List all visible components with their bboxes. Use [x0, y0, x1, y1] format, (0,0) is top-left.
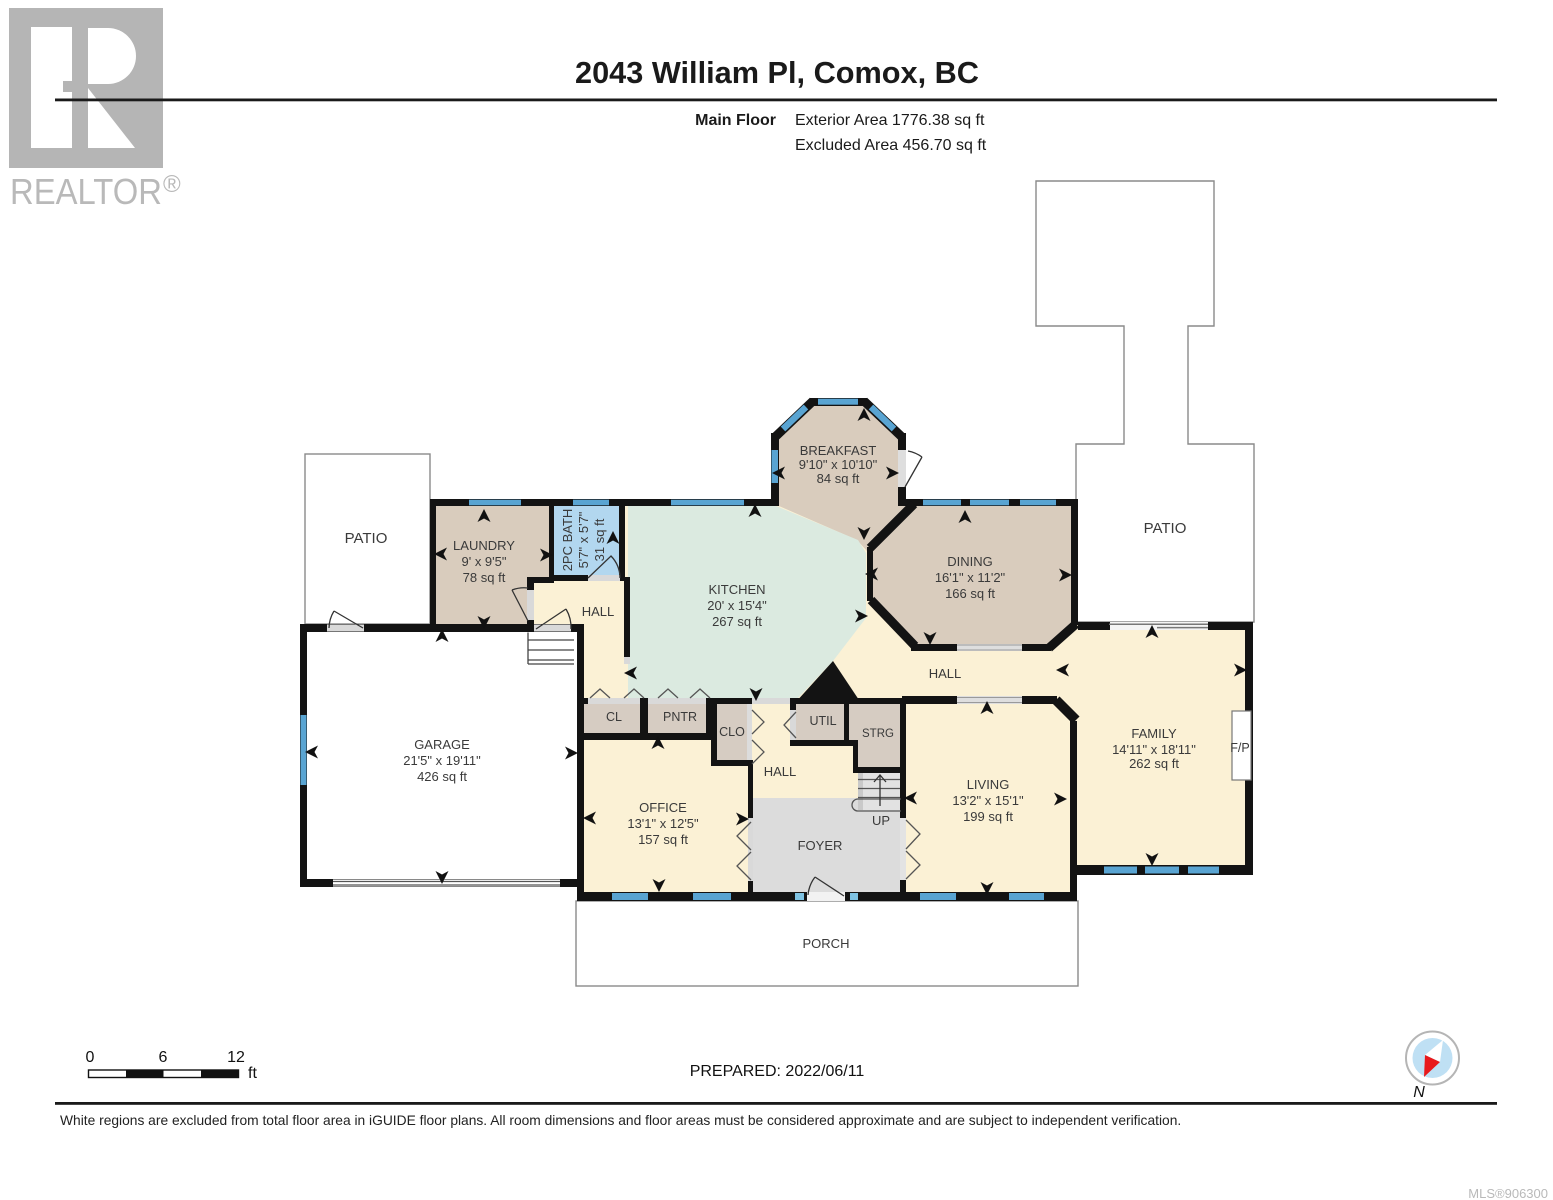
svg-text:PATIO: PATIO: [1144, 520, 1187, 537]
svg-text:262 sq ft: 262 sq ft: [1129, 756, 1179, 771]
svg-text:REALTOR: REALTOR: [10, 171, 162, 212]
svg-text:0: 0: [86, 1049, 95, 1066]
svg-text:HALL: HALL: [929, 666, 962, 681]
svg-text:GARAGE: GARAGE: [414, 737, 470, 752]
svg-text:267 sq ft: 267 sq ft: [712, 614, 762, 629]
svg-text:157 sq ft: 157 sq ft: [638, 832, 688, 847]
svg-text:OFFICE: OFFICE: [639, 800, 687, 815]
svg-text:199 sq ft: 199 sq ft: [963, 809, 1013, 824]
svg-text:PNTR: PNTR: [663, 710, 697, 724]
svg-text:ft: ft: [248, 1065, 257, 1082]
svg-text:Main Floor: Main Floor: [695, 112, 776, 129]
svg-text:PREPARED: 2022/06/11: PREPARED: 2022/06/11: [690, 1063, 865, 1080]
svg-text:13'2" x 15'1": 13'2" x 15'1": [952, 793, 1024, 808]
svg-text:DINING: DINING: [947, 554, 993, 569]
svg-text:Exterior Area 1776.38 sq ft: Exterior Area 1776.38 sq ft: [795, 112, 985, 129]
svg-text:6: 6: [159, 1049, 168, 1066]
svg-text:PORCH: PORCH: [803, 936, 850, 951]
svg-text:CLO: CLO: [719, 725, 745, 739]
svg-text:426 sq ft: 426 sq ft: [417, 769, 467, 784]
svg-text:166 sq ft: 166 sq ft: [945, 586, 995, 601]
svg-text:HALL: HALL: [582, 604, 615, 619]
svg-text:KITCHEN: KITCHEN: [708, 582, 765, 597]
svg-text:84 sq ft: 84 sq ft: [817, 471, 860, 486]
svg-text:PATIO: PATIO: [345, 530, 388, 547]
svg-text:FAMILY: FAMILY: [1131, 726, 1177, 741]
svg-text:31 sq ft: 31 sq ft: [592, 518, 607, 561]
svg-text:20' x 15'4": 20' x 15'4": [707, 598, 767, 613]
svg-text:14'11" x 18'11": 14'11" x 18'11": [1112, 742, 1196, 757]
svg-text:CL: CL: [606, 710, 622, 724]
svg-text:LIVING: LIVING: [967, 777, 1010, 792]
svg-text:13'1" x 12'5": 13'1" x 12'5": [627, 816, 699, 831]
svg-text:9' x 9'5": 9' x 9'5": [462, 554, 507, 569]
svg-text:5'7" x 5'7": 5'7" x 5'7": [576, 511, 591, 568]
svg-text:LAUNDRY: LAUNDRY: [453, 538, 515, 553]
svg-text:BREAKFAST: BREAKFAST: [800, 443, 877, 458]
svg-text:White regions are excluded fro: White regions are excluded from total fl…: [60, 1113, 1181, 1128]
svg-text:Excluded Area 456.70 sq ft: Excluded Area 456.70 sq ft: [795, 137, 987, 154]
svg-text:FOYER: FOYER: [798, 838, 843, 853]
svg-text:N: N: [1413, 1084, 1425, 1101]
svg-text:16'1" x 11'2": 16'1" x 11'2": [935, 570, 1006, 585]
svg-text:F/P: F/P: [1230, 741, 1249, 755]
svg-text:STRG: STRG: [862, 728, 894, 740]
svg-text:HALL: HALL: [764, 764, 797, 779]
svg-text:2PC BATH: 2PC BATH: [560, 509, 575, 572]
svg-text:UTIL: UTIL: [809, 714, 836, 728]
svg-text:UP: UP: [872, 813, 890, 828]
svg-text:®: ®: [163, 171, 181, 198]
svg-text:12: 12: [227, 1049, 245, 1066]
svg-text:MLS®906300: MLS®906300: [1468, 1186, 1548, 1200]
svg-text:21'5" x 19'11": 21'5" x 19'11": [403, 753, 481, 768]
svg-text:2043 William Pl, Comox, BC: 2043 William Pl, Comox, BC: [575, 55, 979, 90]
svg-text:9'10" x 10'10": 9'10" x 10'10": [799, 457, 878, 472]
svg-text:78 sq ft: 78 sq ft: [463, 570, 506, 585]
